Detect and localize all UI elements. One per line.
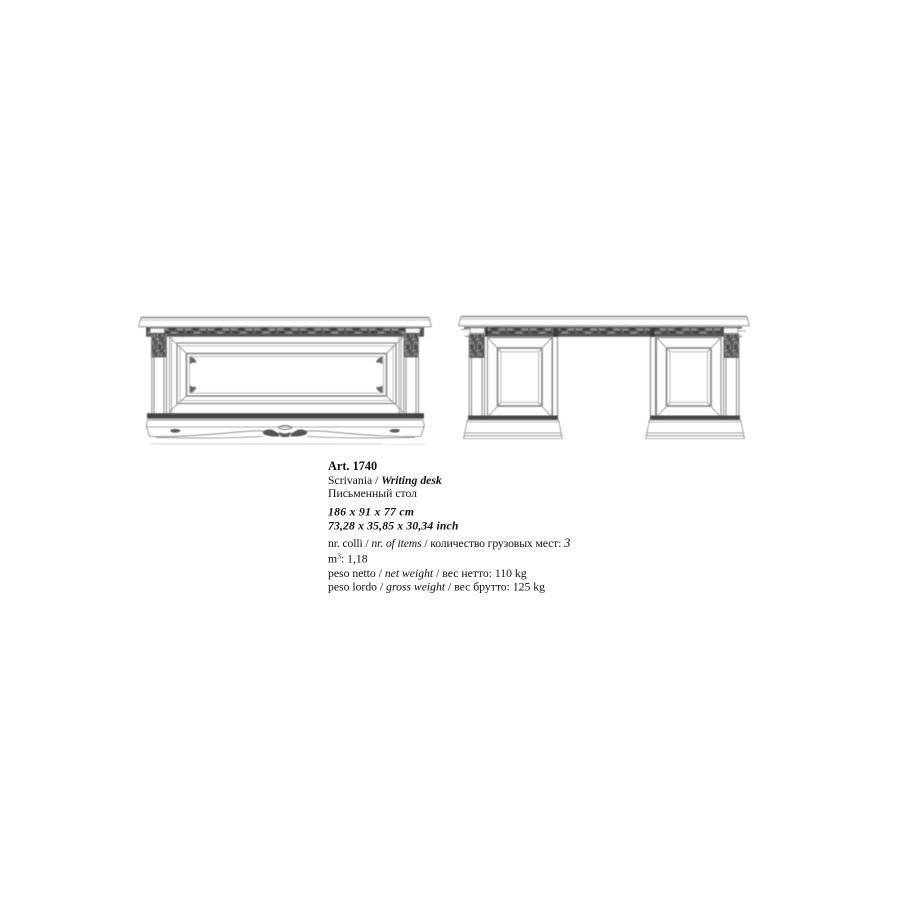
svg-text:Scrivania / Writing desk: Scrivania / Writing desk: [328, 474, 442, 487]
svg-text:186 x 91 x 77 cm: 186 x 91 x 77 cm: [328, 506, 414, 519]
svg-text:m3: 1,18: m3: 1,18: [328, 552, 368, 566]
svg-text:peso netto / net weight / вес: peso netto / net weight / вес нетто: 110…: [328, 567, 527, 580]
svg-text:Письменный стол: Письменный стол: [328, 487, 417, 500]
svg-text:peso lordo / gross weight / ве: peso lordo / gross weight / вес брутто: …: [328, 581, 545, 594]
svg-text:nr. colli / nr. of items / кол: nr. colli / nr. of items / количество гр…: [328, 536, 570, 550]
svg-text:73,28 x 35,85 x 30,34 inch: 73,28 x 35,85 x 30,34 inch: [328, 519, 459, 532]
svg-text:Art. 1740: Art. 1740: [328, 459, 377, 473]
